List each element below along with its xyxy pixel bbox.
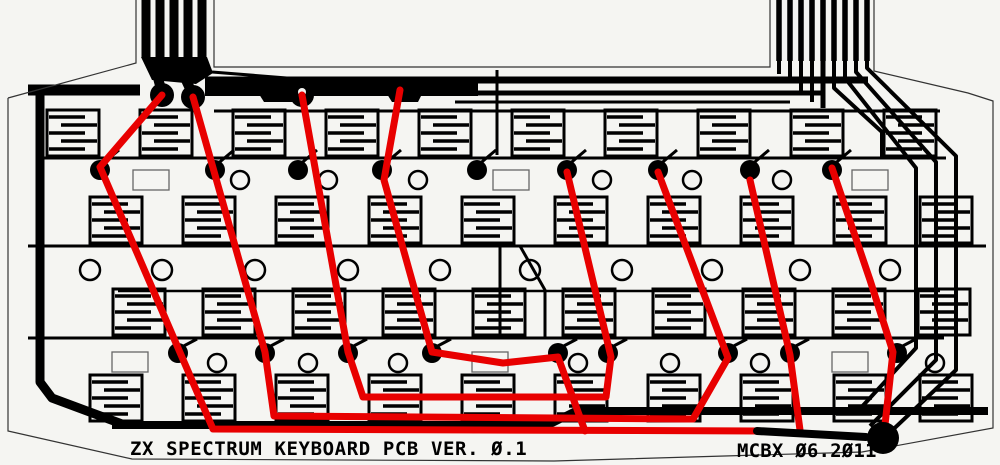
membrane-hole [338, 260, 358, 280]
membrane-hole [299, 354, 317, 372]
key-contact-comb [473, 289, 525, 335]
via-dot [467, 160, 487, 180]
key-contact-comb [791, 110, 843, 156]
red-jumper-net-b [193, 97, 728, 419]
membrane-hole [880, 260, 900, 280]
key-contact-comb [698, 110, 750, 156]
left-connector [146, 0, 202, 57]
membrane-holes [80, 171, 944, 372]
key-contact-comb [512, 110, 564, 156]
key-contact-comb [326, 110, 378, 156]
component-outline-rect [493, 170, 529, 190]
membrane-hole [245, 260, 265, 280]
via-dot [288, 160, 308, 180]
key-contact-comb [605, 110, 657, 156]
key-contact-comb [653, 289, 705, 335]
right-connector [779, 0, 867, 61]
membrane-hole [683, 171, 701, 189]
key-contact-comb [462, 197, 514, 243]
membrane-hole [231, 171, 249, 189]
membrane-hole [702, 260, 722, 280]
board-title: ZX SPECTRUM KEYBOARD PCB VER. Ø.1 [130, 438, 527, 460]
membrane-hole [430, 260, 450, 280]
key-contact-comb [884, 110, 936, 156]
board-author-date: MCBX Ø6.2Ø11 [737, 440, 877, 462]
component-outline-rect [852, 170, 888, 190]
key-contact-comb [920, 197, 972, 243]
pcb-diagram [0, 0, 1000, 465]
membrane-hole [569, 354, 587, 372]
key-contact-comb [918, 289, 970, 335]
membrane-hole [80, 260, 100, 280]
pcb-layout-screenshot: ZX SPECTRUM KEYBOARD PCB VER. Ø.1 MCBX Ø… [0, 0, 1000, 465]
membrane-hole [790, 260, 810, 280]
key-contact-comb [419, 110, 471, 156]
key-contact-comb [140, 110, 192, 156]
membrane-hole [208, 354, 226, 372]
membrane-hole [612, 260, 632, 280]
component-outline-rect [112, 352, 148, 372]
membrane-hole [409, 171, 427, 189]
black-jumper-trace [757, 431, 866, 437]
membrane-hole [751, 354, 769, 372]
membrane-hole [593, 171, 611, 189]
membrane-hole [389, 354, 407, 372]
copper-pour [141, 57, 213, 84]
key-contact-comb [741, 197, 793, 243]
key-contact-comb [90, 375, 142, 421]
component-outline-rect [133, 170, 169, 190]
membrane-hole [661, 354, 679, 372]
membrane-hole [773, 171, 791, 189]
key-contact-comb [233, 110, 285, 156]
membrane-hole [152, 260, 172, 280]
key-contact-comb [47, 110, 99, 156]
component-outline-rect [832, 352, 868, 372]
